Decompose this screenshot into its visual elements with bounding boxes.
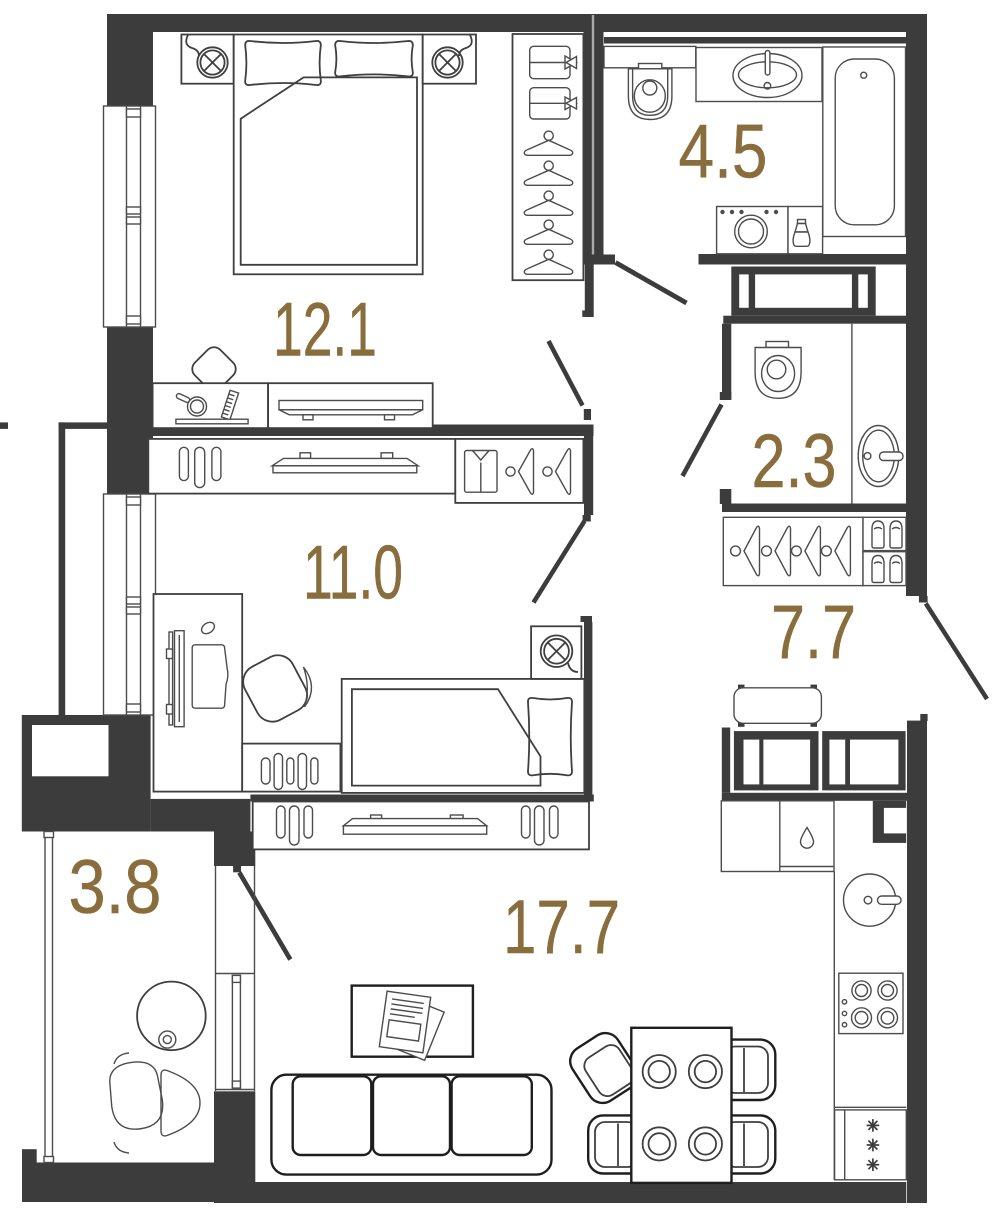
svg-text:7.7: 7.7 (771, 590, 856, 675)
svg-text:11.0: 11.0 (303, 531, 403, 616)
svg-text:3.8: 3.8 (69, 845, 162, 930)
svg-text:17.7: 17.7 (503, 885, 620, 970)
svg-text:2.3: 2.3 (752, 419, 837, 504)
svg-text:4.5: 4.5 (679, 110, 768, 195)
svg-text:12.1: 12.1 (273, 288, 377, 373)
